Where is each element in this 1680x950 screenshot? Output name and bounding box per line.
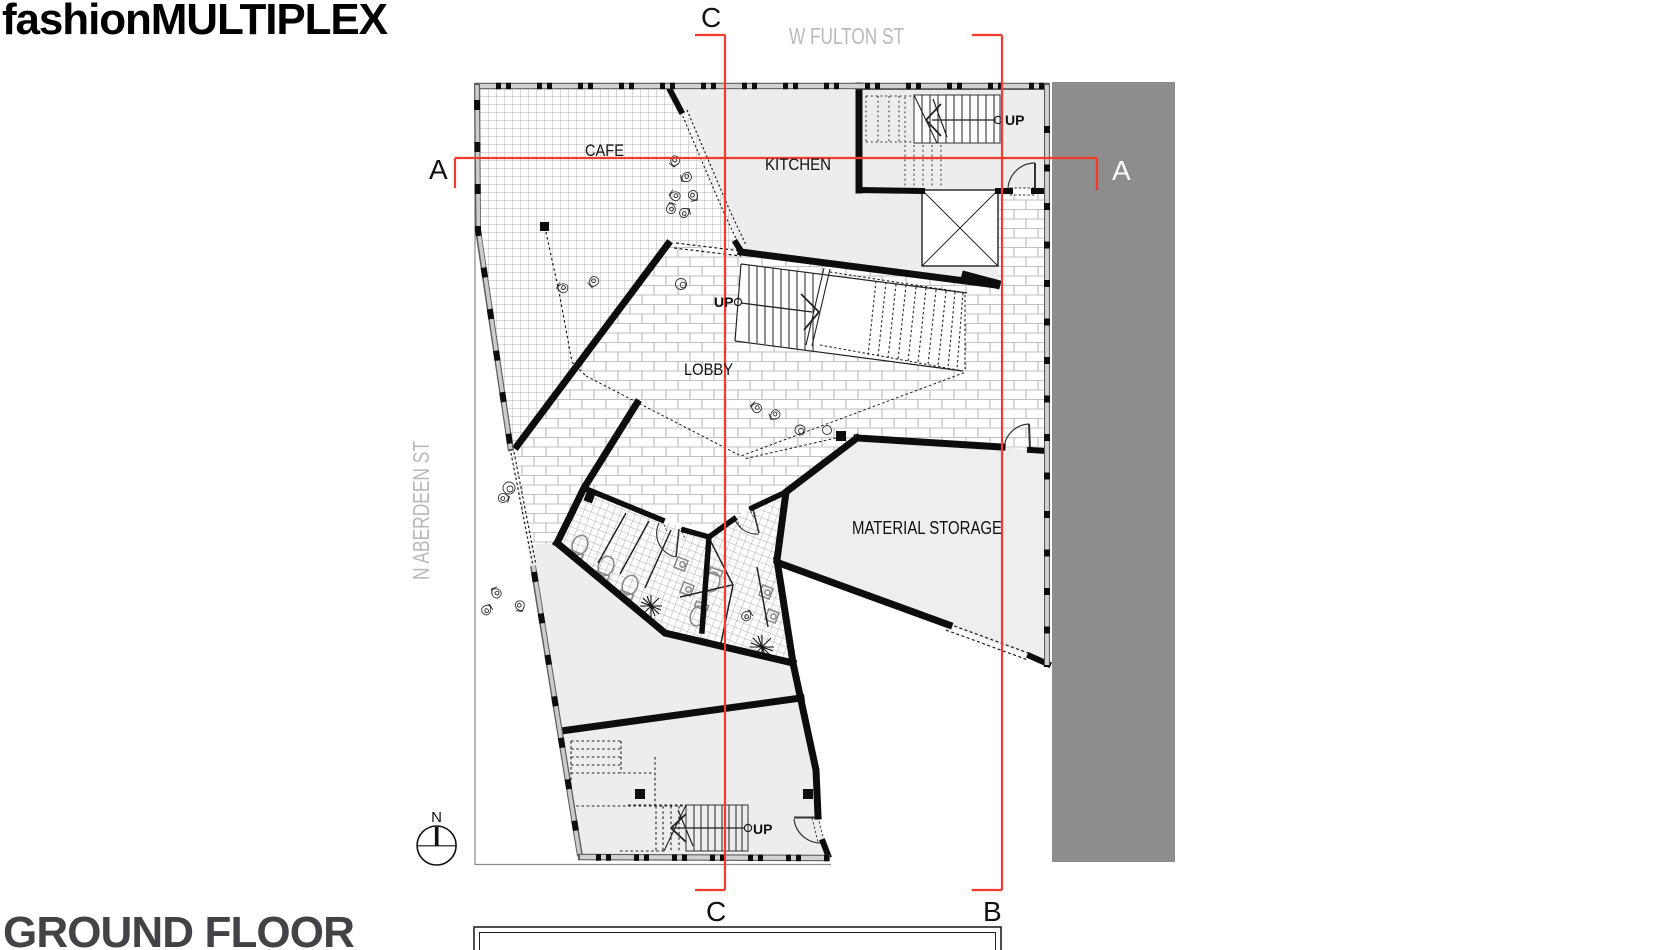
svg-text:KITCHEN: KITCHEN [765, 155, 831, 174]
svg-text:UP: UP [753, 821, 772, 837]
svg-text:A: A [429, 154, 448, 185]
svg-text:MATERIAL STORAGE: MATERIAL STORAGE [852, 518, 1002, 538]
svg-text:N: N [431, 809, 442, 826]
svg-text:A: A [1112, 155, 1131, 186]
svg-text:W FULTON ST: W FULTON ST [789, 23, 904, 49]
svg-text:C: C [706, 896, 726, 927]
svg-text:N ABERDEEN ST: N ABERDEEN ST [408, 441, 434, 580]
svg-text:UP: UP [714, 294, 733, 310]
svg-text:B: B [983, 896, 1002, 927]
svg-text:C: C [701, 2, 721, 33]
svg-text:CAFE: CAFE [585, 141, 624, 160]
svg-text:UP: UP [1005, 112, 1024, 128]
svg-text:LOBBY: LOBBY [684, 360, 733, 379]
